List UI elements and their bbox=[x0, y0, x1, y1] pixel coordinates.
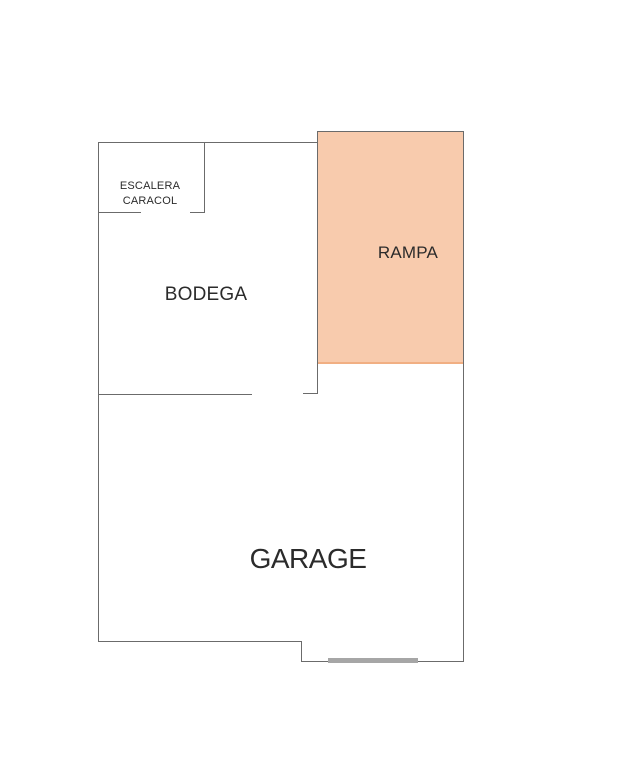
room-label-garage: GARAGE bbox=[250, 543, 367, 575]
room-label-escalera: ESCALERA CARACOL bbox=[120, 179, 180, 209]
wall-bodega-right bbox=[317, 131, 318, 394]
room-label-rampa: RAMPA bbox=[378, 243, 438, 263]
wall-garage-step bbox=[301, 641, 302, 662]
wall-bodega-bottom-right bbox=[303, 393, 318, 394]
wall-garage-bottom-left bbox=[98, 641, 302, 642]
escalera-label-line2: CARACOL bbox=[120, 194, 180, 209]
wall-bodega-bottom-left bbox=[98, 394, 252, 395]
wall-right bbox=[463, 131, 464, 662]
wall-escalera-bottom-left bbox=[98, 212, 141, 213]
escalera-label-line1: ESCALERA bbox=[120, 179, 180, 194]
wall-left bbox=[98, 142, 99, 642]
floor-plan: ESCALERA CARACOL BODEGA RAMPA GARAGE bbox=[0, 0, 620, 768]
room-label-bodega: BODEGA bbox=[165, 284, 248, 306]
wall-top bbox=[98, 142, 318, 143]
wall-escalera-bottom-right bbox=[190, 212, 205, 213]
wall-escalera-right bbox=[204, 142, 205, 213]
garage-door bbox=[328, 658, 418, 663]
